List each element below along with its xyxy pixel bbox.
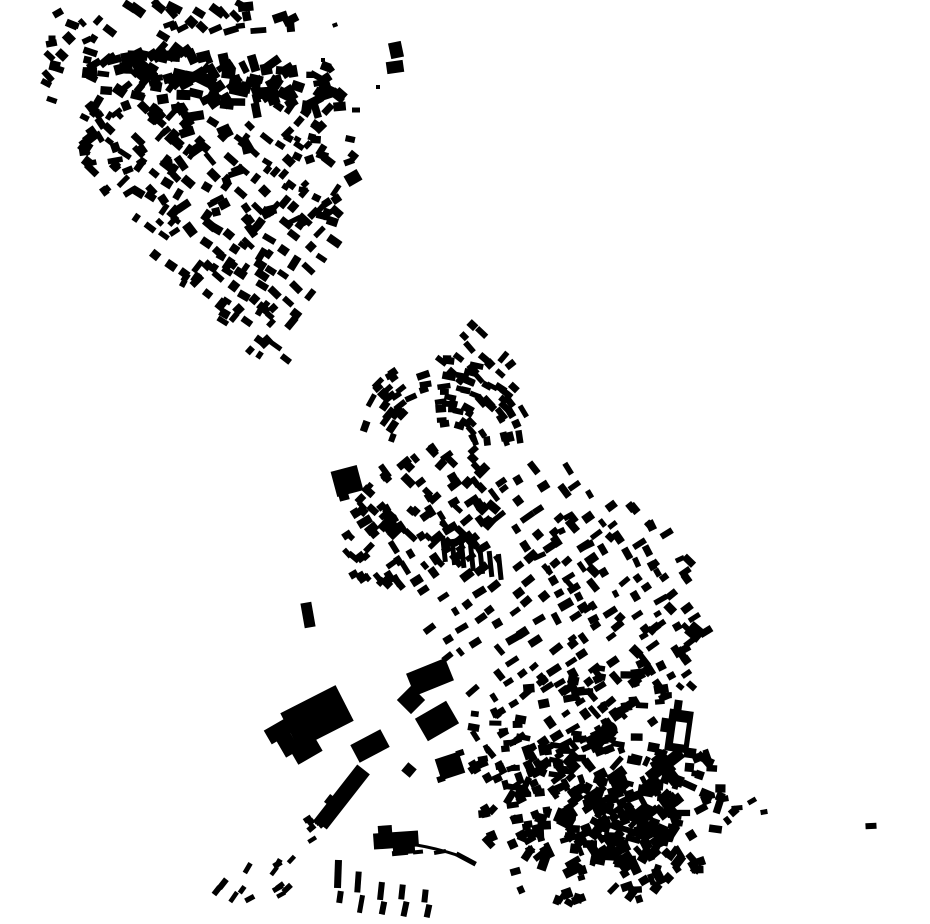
- map-figure: [0, 0, 930, 924]
- building-footprint-map: [0, 0, 930, 924]
